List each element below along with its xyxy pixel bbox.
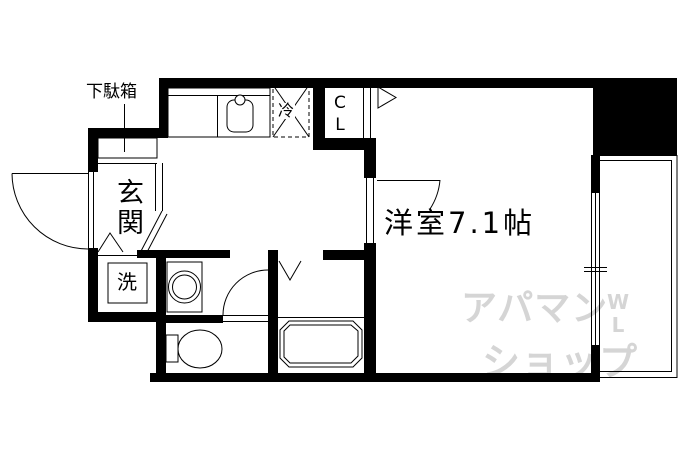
- wall-bathroom-west: [268, 250, 278, 382]
- entrance-door: [12, 172, 94, 250]
- wall-toilet-north: [156, 315, 223, 323]
- wall-closet-west: [313, 88, 325, 138]
- wall-washroom-west: [88, 248, 98, 322]
- closet-label-l: L: [334, 114, 346, 136]
- balcony-inner-rail: [600, 161, 672, 372]
- floorplan-drawing: [0, 0, 690, 460]
- wall-north: [159, 78, 677, 88]
- floorplan: アパマン W L ショップ: [0, 0, 690, 460]
- washing-machine-icon: [167, 262, 202, 312]
- toilet-door: [223, 270, 268, 322]
- main-room-label: 洋室7.1帖: [384, 209, 535, 238]
- wall-washroom-south: [88, 312, 166, 322]
- wall-mainroom-west-lower: [364, 243, 376, 382]
- faucet-icon: [235, 95, 245, 105]
- balcony-outer-rail: [600, 156, 677, 378]
- balcony: [600, 156, 677, 378]
- entrance-door-arc: [12, 174, 88, 250]
- toilet-door-arc: [223, 270, 268, 315]
- walls: [88, 78, 677, 382]
- closet-door-swing-icon: [378, 87, 396, 108]
- main-room-door-arc: [430, 180, 440, 209]
- refrigerator-label: 冷: [277, 103, 295, 119]
- bathroom-door-icon: [279, 261, 301, 280]
- bathtub-icon: [278, 318, 364, 368]
- wall-entrance-north: [88, 128, 168, 138]
- window: [584, 193, 607, 345]
- wall-hall-south: [137, 250, 230, 258]
- wall-bathroom-north: [323, 250, 366, 260]
- wall-entrance-west: [88, 138, 98, 172]
- wall-closet-south: [313, 138, 376, 150]
- shoe-cabinet-label: 下駄箱: [86, 84, 137, 101]
- kitchen-counter: [168, 88, 270, 137]
- washer-label: 洗: [117, 272, 137, 292]
- closet-label: C L: [334, 92, 346, 136]
- pillar-northeast: [593, 88, 677, 155]
- closet-door: [364, 88, 371, 138]
- entrance-label: 玄関: [114, 178, 141, 238]
- toilet-icon: [166, 330, 222, 368]
- entrance-step-edge: [140, 163, 167, 256]
- closet-label-c: C: [334, 92, 346, 114]
- wall-east-upper-jamb: [591, 155, 600, 193]
